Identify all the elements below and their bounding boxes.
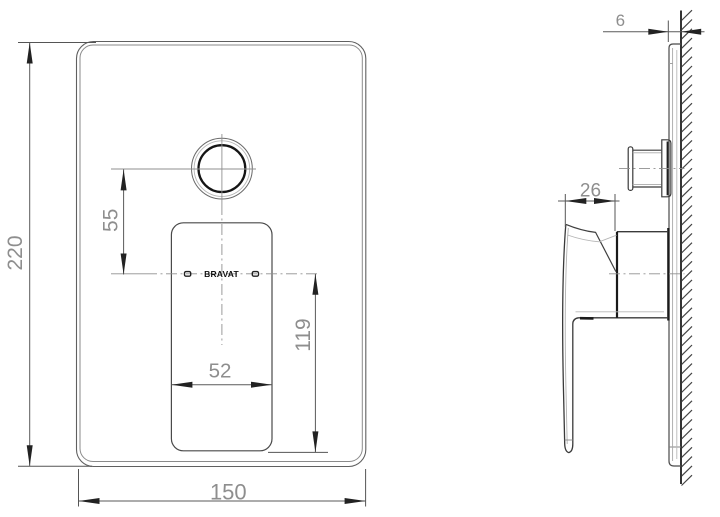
svg-text:6: 6 xyxy=(616,11,625,30)
svg-text:26: 26 xyxy=(580,180,601,201)
svg-text:55: 55 xyxy=(100,209,123,232)
svg-text:220: 220 xyxy=(4,235,27,270)
svg-text:119: 119 xyxy=(292,318,315,351)
svg-text:52: 52 xyxy=(209,360,232,383)
svg-text:150: 150 xyxy=(210,480,247,505)
svg-text:BRAVAT: BRAVAT xyxy=(204,269,239,279)
